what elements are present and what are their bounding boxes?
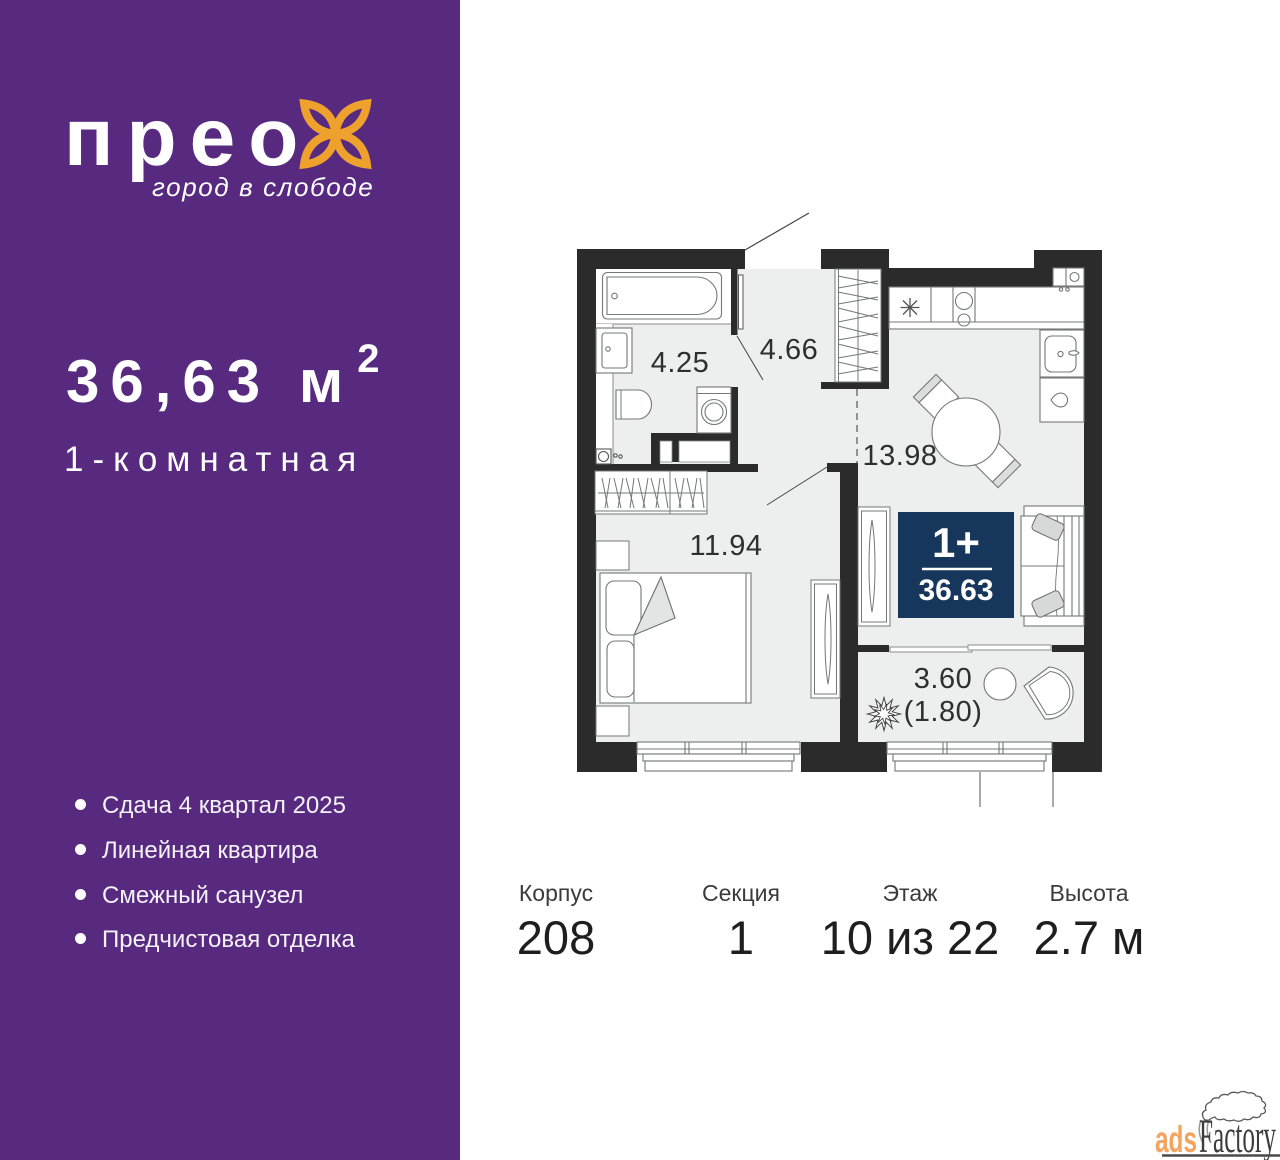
svg-text:13.98: 13.98 xyxy=(862,440,937,472)
svg-text:ads: ads xyxy=(1155,1119,1197,1160)
svg-text:11.94: 11.94 xyxy=(690,530,763,562)
svg-text:36.63: 36.63 xyxy=(918,574,993,607)
svg-text:4.66: 4.66 xyxy=(760,334,818,366)
svg-text:Factory: Factory xyxy=(1199,1110,1276,1160)
svg-text:3.60: 3.60 xyxy=(914,663,972,695)
svg-text:1+: 1+ xyxy=(932,519,980,566)
svg-text:(1.80): (1.80) xyxy=(904,696,983,728)
svg-text:4.25: 4.25 xyxy=(651,347,709,379)
